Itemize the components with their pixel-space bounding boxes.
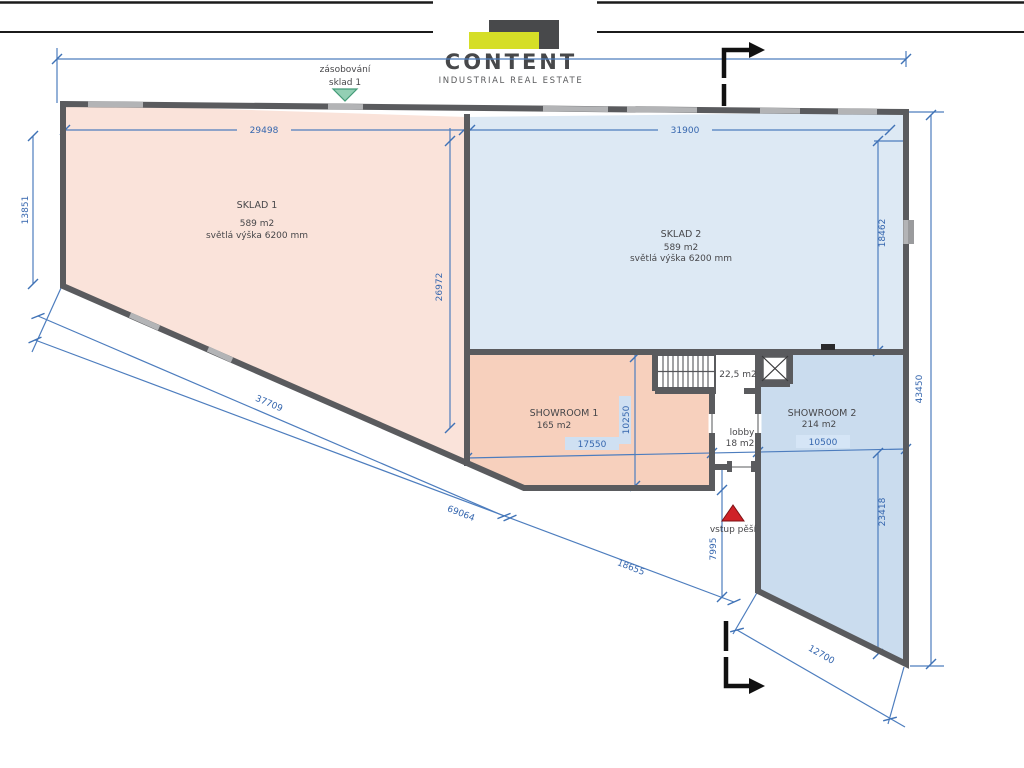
section-arrow-top bbox=[724, 42, 765, 106]
door-jamb bbox=[727, 461, 732, 472]
lobby-area: 18 m2 bbox=[726, 439, 755, 449]
room-showroom1 bbox=[467, 354, 712, 488]
dim-showroom2-lower-height: 23418 bbox=[878, 497, 888, 526]
dim-diagonal-upper: 37709 bbox=[254, 394, 285, 414]
dim-showroom1-width: 17550 bbox=[578, 440, 607, 450]
dim-right-total-height: 43450 bbox=[915, 374, 925, 403]
lobby-name: lobby bbox=[730, 428, 755, 438]
sklad2-area: 589 m2 bbox=[664, 243, 699, 253]
dim-sklad1-inner-height: 26972 bbox=[435, 273, 445, 302]
supply-label-line2: sklad 1 bbox=[329, 78, 361, 88]
supply-marker: zásobování sklad 1 bbox=[320, 65, 371, 101]
sklad1-name: SKLAD 1 bbox=[237, 200, 278, 211]
floor-plan-svg: CONTENT INDUSTRIAL REAL ESTATE bbox=[0, 0, 1024, 768]
arrow-head-icon bbox=[749, 42, 765, 58]
wall-door-mark bbox=[821, 344, 835, 350]
dim-sklad1-width: 29498 bbox=[250, 126, 279, 136]
room-sklad1 bbox=[63, 104, 467, 464]
door-jamb bbox=[751, 461, 756, 472]
logo-brand-text: CONTENT bbox=[445, 50, 577, 74]
dim-diagonal-total: 69064 bbox=[446, 504, 477, 524]
entry-marker: vstup pěší bbox=[710, 505, 757, 535]
staircase-icon bbox=[657, 355, 715, 388]
company-logo: CONTENT INDUSTRIAL REAL ESTATE bbox=[433, 0, 597, 88]
entry-label: vstup pěší bbox=[710, 524, 757, 535]
dim-bottom-edge: 12700 bbox=[806, 644, 836, 667]
showroom1-area: 165 m2 bbox=[537, 421, 572, 431]
showroom2-name: SHOWROOM 2 bbox=[788, 408, 857, 419]
dim-left-height: 13851 bbox=[21, 196, 31, 225]
logo-yellow-block-icon bbox=[469, 32, 539, 49]
sklad2-note: světlá výška 6200 mm bbox=[630, 253, 732, 264]
supply-arrow-icon bbox=[333, 89, 357, 101]
dim-entry-depth: 7995 bbox=[709, 538, 719, 561]
sklad2-name: SKLAD 2 bbox=[661, 229, 702, 240]
dim-showroom2-width: 10500 bbox=[809, 438, 838, 448]
sklad1-area: 589 m2 bbox=[240, 219, 275, 229]
showroom1-name: SHOWROOM 1 bbox=[530, 408, 599, 419]
showroom2-area: 214 m2 bbox=[802, 420, 837, 430]
dim-sklad2-inner-height: 18462 bbox=[878, 219, 888, 248]
entry-arrow-icon bbox=[722, 505, 744, 521]
right-wall-door-tab bbox=[908, 220, 914, 244]
arrow-head-icon bbox=[749, 678, 765, 694]
sklad1-note: světlá výška 6200 mm bbox=[206, 230, 308, 241]
elevator-icon bbox=[762, 356, 788, 381]
dim-diagonal-lower: 18655 bbox=[616, 558, 646, 578]
stair-room-area: 22,5 m2 bbox=[719, 370, 756, 380]
dim-showroom1-height: 10250 bbox=[622, 405, 632, 434]
logo-tagline: INDUSTRIAL REAL ESTATE bbox=[439, 76, 584, 86]
supply-label-line1: zásobování bbox=[320, 65, 371, 75]
dim-sklad2-width: 31900 bbox=[671, 126, 700, 136]
